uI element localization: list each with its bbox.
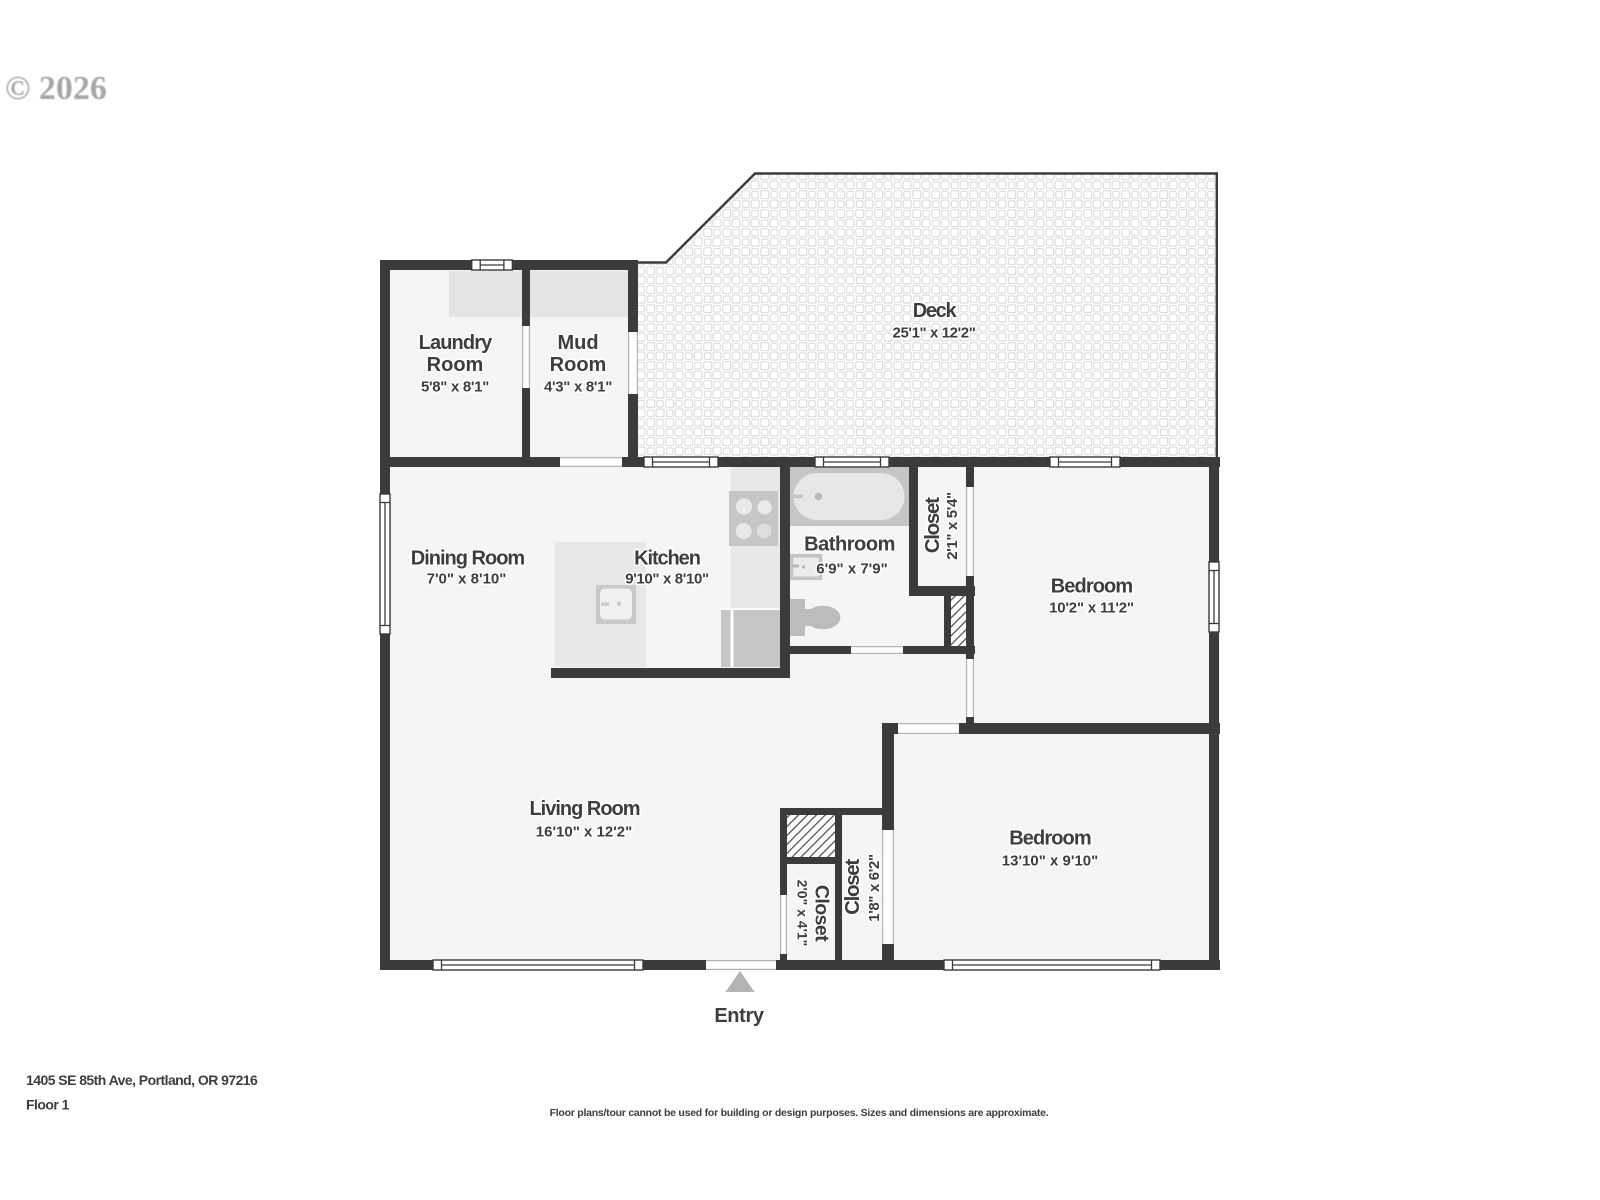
- svg-text:16'10" x 12'2": 16'10" x 12'2": [536, 824, 632, 841]
- svg-text:1405 SE 85th Ave, Portland, OR: 1405 SE 85th Ave, Portland, OR 97216: [26, 1072, 258, 1088]
- svg-text:Dining Room: Dining Room: [411, 548, 525, 570]
- svg-text:Bedroom: Bedroom: [1051, 576, 1133, 598]
- svg-text:Living Room: Living Room: [529, 798, 639, 820]
- svg-text:4'3" x 8'1": 4'3" x 8'1": [544, 379, 612, 396]
- svg-text:2'1" x 5'4": 2'1" x 5'4": [944, 492, 961, 560]
- svg-text:Closet: Closet: [841, 859, 864, 915]
- svg-text:7'0" x 8'10": 7'0" x 8'10": [427, 571, 507, 588]
- svg-text:Closet: Closet: [921, 497, 944, 553]
- svg-text:10'2" x 11'2": 10'2" x 11'2": [1049, 600, 1134, 617]
- svg-text:2'0" x 4'1": 2'0" x 4'1": [795, 880, 811, 947]
- svg-text:Closet: Closet: [811, 885, 833, 942]
- svg-text:6'9" x 7'9": 6'9" x 7'9": [816, 561, 887, 578]
- svg-text:Floor 1: Floor 1: [26, 1097, 70, 1113]
- svg-text:Bathroom: Bathroom: [804, 534, 895, 556]
- svg-text:Bedroom: Bedroom: [1009, 828, 1091, 850]
- svg-text:Kitchen: Kitchen: [634, 548, 700, 570]
- svg-text:25'1" x 12'2": 25'1" x 12'2": [893, 325, 976, 342]
- svg-text:13'10" x 9'10": 13'10" x 9'10": [1002, 853, 1098, 870]
- svg-text:Laundry: Laundry: [419, 332, 493, 354]
- svg-text:9'10" x 8'10": 9'10" x 8'10": [625, 571, 709, 588]
- svg-text:1'8" x 6'2": 1'8" x 6'2": [866, 854, 883, 922]
- svg-text:Room: Room: [427, 354, 484, 376]
- svg-text:Room: Room: [550, 354, 607, 376]
- svg-text:Mud: Mud: [557, 332, 598, 354]
- svg-text:Entry: Entry: [714, 1005, 765, 1027]
- svg-text:Floor plans/tour cannot be use: Floor plans/tour cannot be used for buil…: [550, 1107, 1049, 1119]
- svg-text:Deck: Deck: [913, 300, 958, 322]
- svg-text:5'8" x 8'1": 5'8" x 8'1": [421, 379, 489, 396]
- svg-text:© 2026: © 2026: [5, 70, 107, 107]
